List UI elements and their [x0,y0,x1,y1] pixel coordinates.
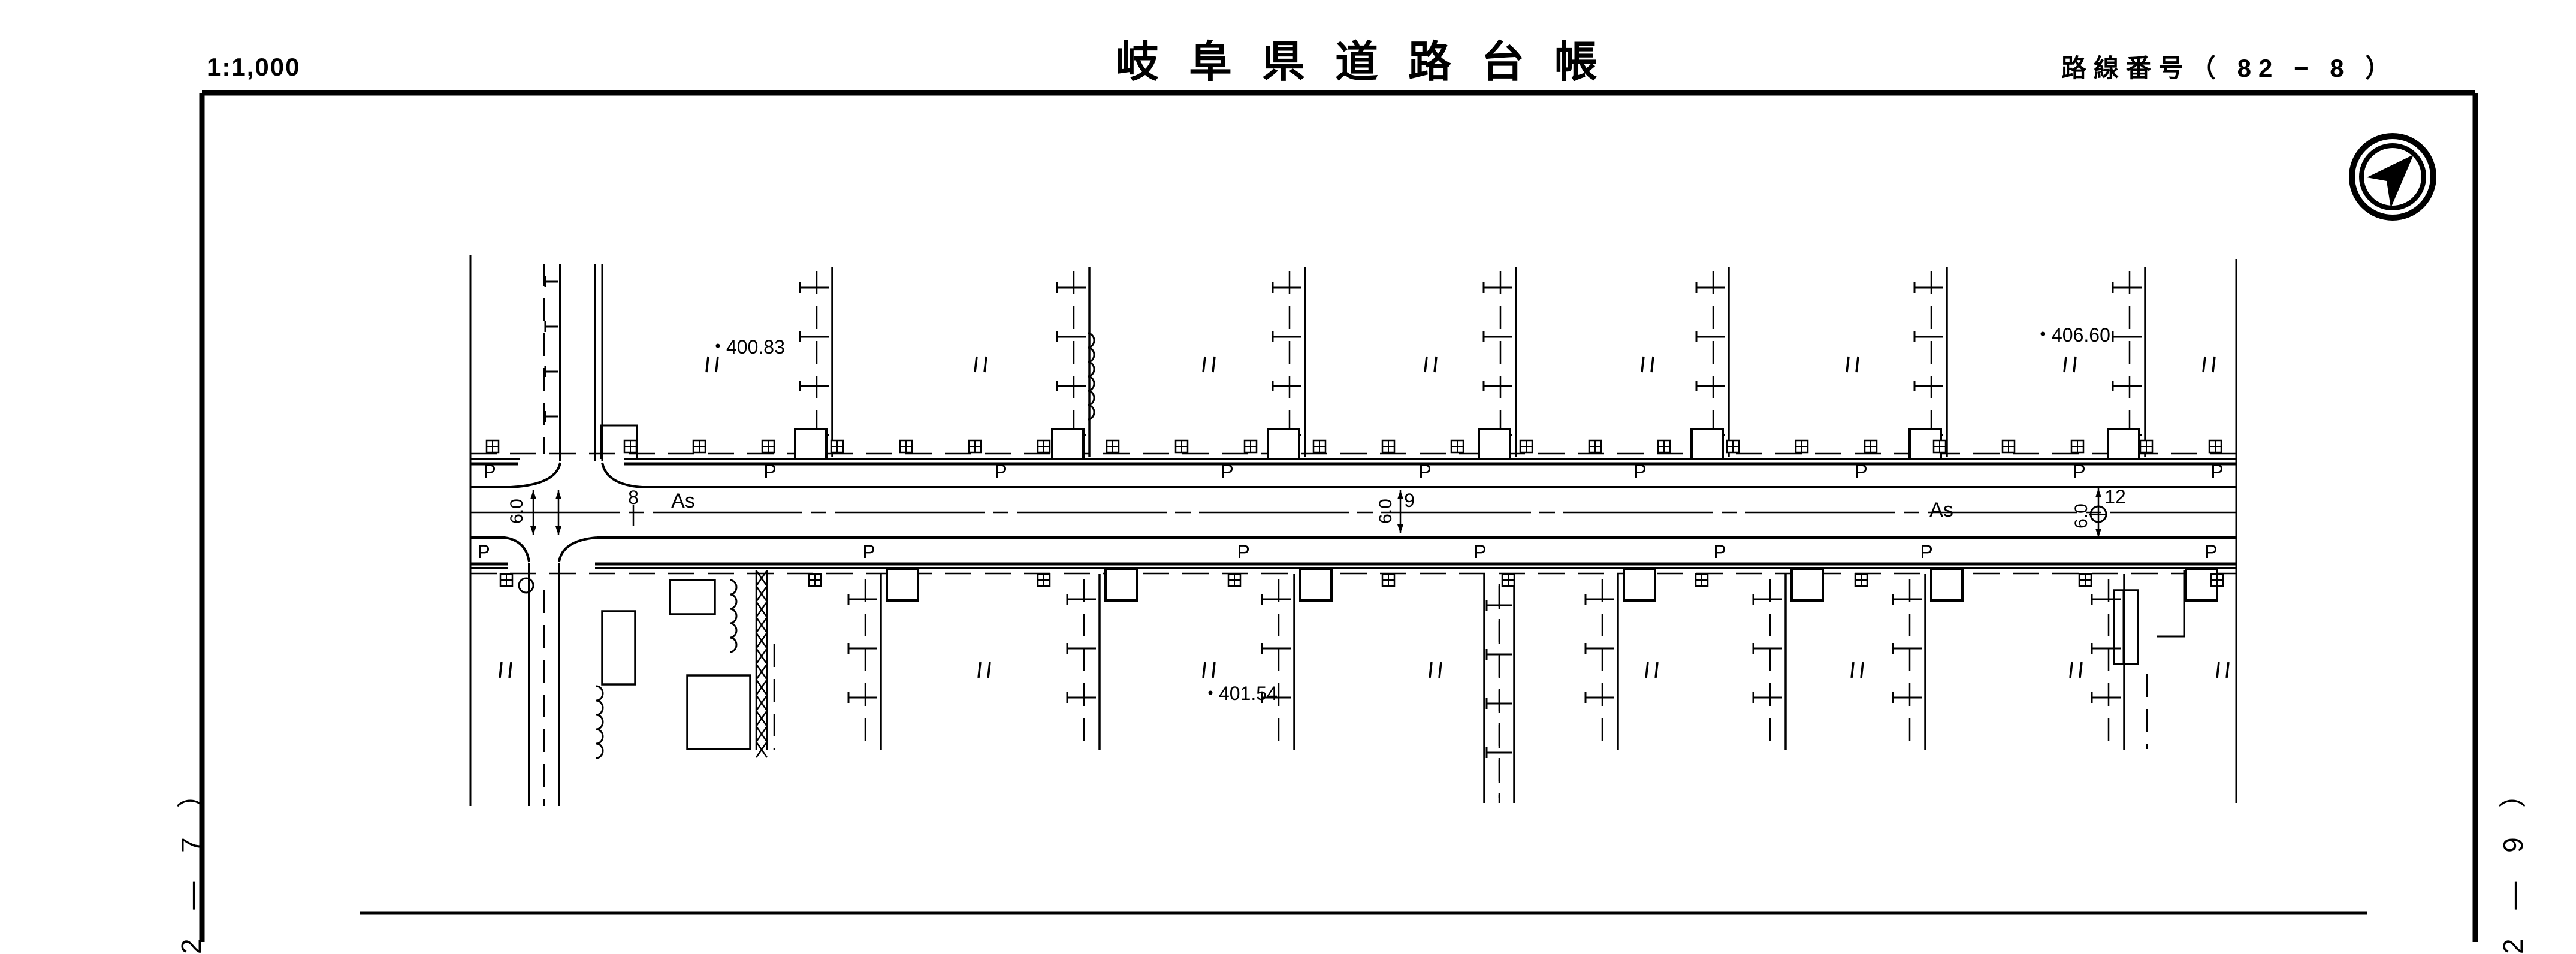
field-mark [706,357,708,372]
field-mark [1847,357,1849,372]
station-number: 9 [1404,490,1415,511]
field-mark [988,662,990,678]
sidewalk-label: P [1473,541,1486,563]
field-mark [1656,662,1657,678]
field-mark [1213,662,1215,678]
road-ledger-map-drawing: AsAsPPPPPPPPPPPPPPPP400.83406.60401.5489… [0,0,2576,942]
field-mark [1439,662,1441,678]
gate-opening [1268,429,1299,459]
sidewalk-label: P [1920,541,1932,563]
width-dimension-arrow [555,526,561,535]
elevation-label: 400.83 [726,336,785,358]
field-mark [500,662,502,678]
gate-opening [1106,569,1137,600]
gate-opening [1052,429,1083,459]
building-outline [2157,570,2184,636]
width-dimension-arrow [555,490,561,499]
field-mark [2074,357,2076,372]
station-number: 12 [2104,486,2126,508]
width-dimension-arrow [2095,529,2101,538]
elevation-point [716,344,720,348]
sidewalk-label: P [862,541,875,563]
gate-opening [1300,569,1331,600]
field-mark [2227,662,2228,678]
sidewalk-label: P [763,461,776,482]
field-mark [1856,357,1858,372]
sidewalk-label: P [1713,541,1726,563]
road-width-label: 6.0 [507,499,527,524]
gate-opening [1792,569,1823,600]
field-mark [1430,662,1432,678]
sidewalk-label: P [2210,461,2223,482]
gate-opening [2108,429,2139,459]
building-outline [602,611,635,684]
field-mark [1425,357,1427,372]
field-mark [2203,357,2205,372]
intersection-corner [505,538,529,562]
sidewalk-label: P [1633,461,1646,482]
field-mark [509,662,511,678]
building-outline [2114,590,2138,664]
hedge-line [596,686,603,758]
field-mark [2213,357,2215,372]
road-surface-label: As [671,490,695,512]
field-mark [1642,357,1644,372]
building-outline [687,675,750,749]
width-dimension-arrow [530,490,536,499]
field-mark [716,357,718,372]
sidewalk-label: P [2073,461,2085,482]
intersection-corner [511,463,560,487]
width-dimension-arrow [1397,524,1403,533]
field-mark [2080,662,2082,678]
gate-opening [1479,429,1510,459]
sidewalk-label: P [994,461,1007,482]
station-number: 8 [628,487,639,508]
field-mark [1203,357,1205,372]
field-mark [1213,357,1215,372]
field-mark [985,357,986,372]
field-mark [2217,662,2219,678]
width-dimension-arrow [1397,490,1403,499]
sidewalk-label: P [2204,541,2217,563]
sidewalk-label: P [1855,461,1867,482]
gate-opening [1931,569,1962,600]
sidewalk-label: P [477,541,490,563]
station-circle-symbol [519,578,533,593]
sidewalk-label: P [1221,461,1233,482]
width-dimension-arrow [2095,488,2101,497]
road-surface-label: As [1929,499,1953,521]
building-outline [670,580,715,614]
field-mark [1852,662,1853,678]
elevation-label: 401.54 [1219,683,1278,704]
intersection-corner [559,538,597,562]
elevation-label: 406.60 [2052,324,2110,346]
gate-opening [887,569,918,600]
gate-opening [1624,569,1655,600]
width-dimension-arrow [530,526,536,535]
sidewalk-label: P [1237,541,1249,563]
sidewalk-label: P [483,461,496,482]
field-mark [1203,662,1205,678]
field-mark [1646,662,1648,678]
field-mark [979,662,980,678]
field-mark [1651,357,1653,372]
road-width-label: 6.0 [2071,503,2091,529]
field-mark [1861,662,1863,678]
sidewalk-label: P [1418,461,1431,482]
elevation-point [2041,332,2045,336]
field-mark [2064,357,2066,372]
gate-opening [795,429,826,459]
field-mark [2070,662,2072,678]
field-mark [975,357,977,372]
gate-opening [1692,429,1723,459]
hedge-line [730,580,736,652]
elevation-point [1209,691,1213,695]
road-width-label: 6.0 [1376,499,1396,524]
field-mark [1435,357,1436,372]
intersection-corner [602,463,642,487]
